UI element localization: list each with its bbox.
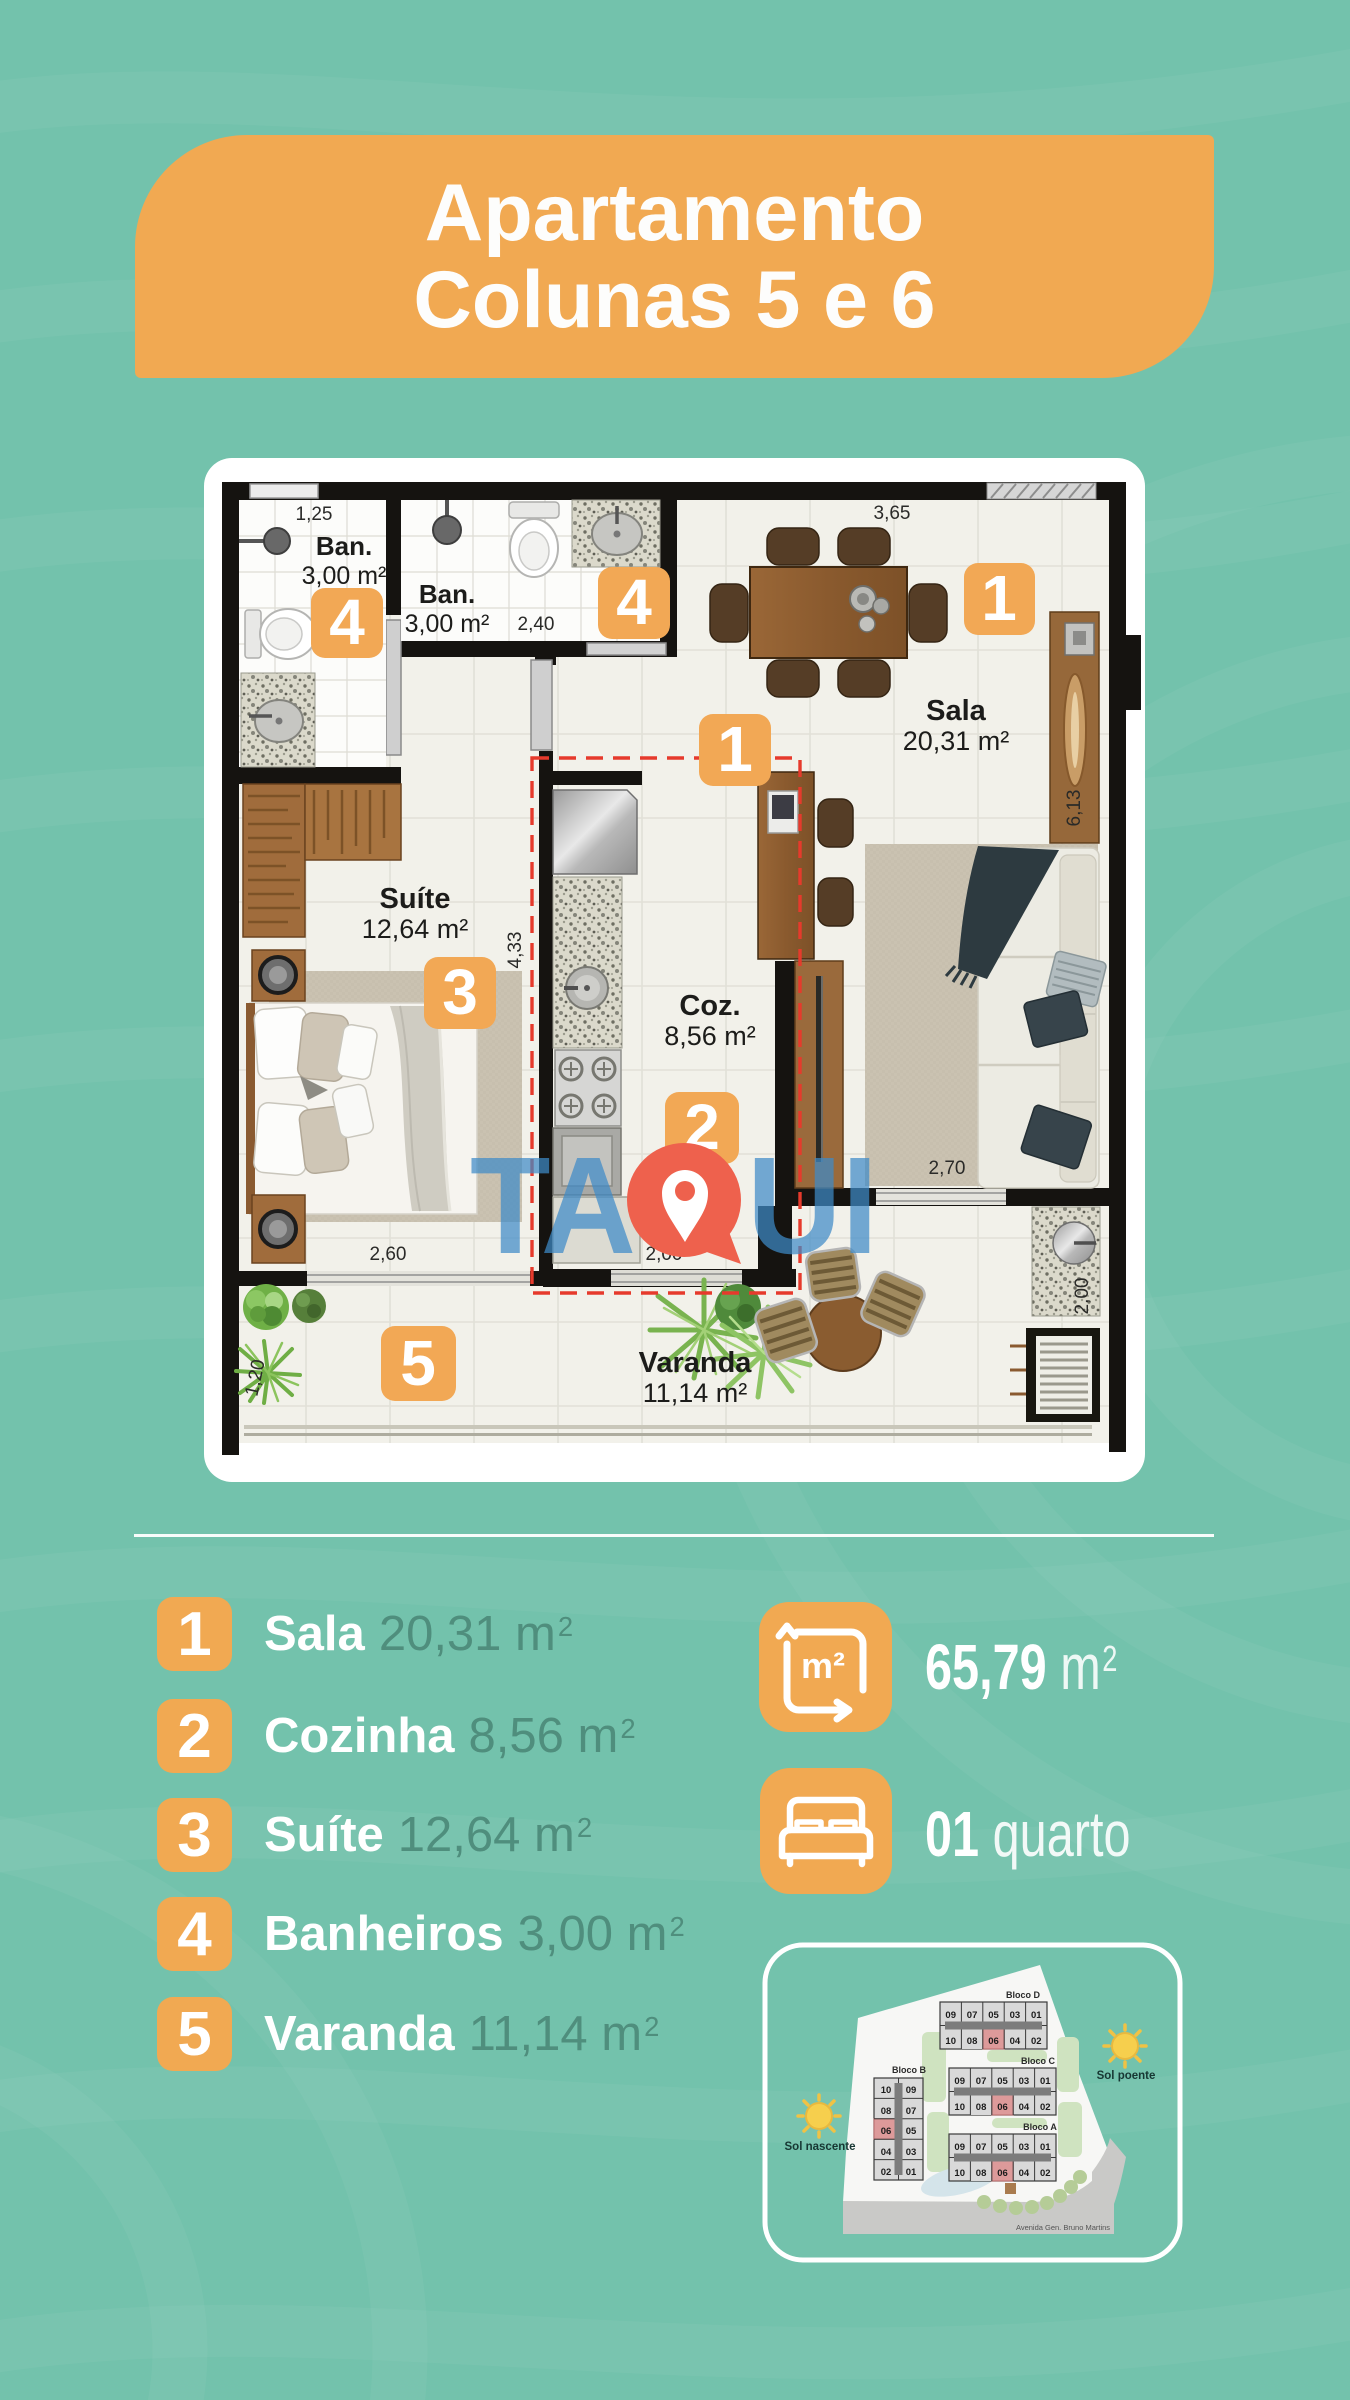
svg-text:Varanda: Varanda xyxy=(639,1347,753,1379)
svg-text:4,33: 4,33 xyxy=(505,932,526,969)
svg-text:Bloco B: Bloco B xyxy=(892,2065,927,2075)
svg-text:08: 08 xyxy=(881,2106,892,2117)
svg-text:05: 05 xyxy=(906,2126,917,2137)
svg-text:Sol poente: Sol poente xyxy=(1097,2070,1156,2082)
svg-text:4: 4 xyxy=(616,566,652,638)
svg-text:Coz.: Coz. xyxy=(679,990,740,1022)
svg-text:2,00: 2,00 xyxy=(1072,1278,1093,1315)
svg-text:3: 3 xyxy=(442,956,478,1028)
svg-text:10: 10 xyxy=(881,2085,892,2096)
svg-text:1: 1 xyxy=(981,562,1017,634)
svg-text:1: 1 xyxy=(717,713,753,785)
svg-text:03: 03 xyxy=(906,2147,917,2158)
svg-text:6,13: 6,13 xyxy=(1064,790,1085,827)
svg-text:Avenida Gen. Bruno Martins: Avenida Gen. Bruno Martins xyxy=(1016,2223,1110,2232)
svg-text:5: 5 xyxy=(400,1327,436,1399)
svg-text:2,70: 2,70 xyxy=(929,1158,966,1179)
svg-text:01: 01 xyxy=(906,2167,917,2178)
svg-text:06: 06 xyxy=(881,2126,892,2137)
svg-text:09: 09 xyxy=(906,2085,917,2096)
svg-text:Sala: Sala xyxy=(926,695,987,727)
svg-text:11,14 m²: 11,14 m² xyxy=(643,1378,748,1408)
svg-text:TA: TA xyxy=(470,1129,636,1283)
svg-text:Ban.: Ban. xyxy=(316,531,372,561)
svg-text:8,56 m²: 8,56 m² xyxy=(664,1021,756,1051)
svg-text:20,31 m²: 20,31 m² xyxy=(903,726,1010,756)
svg-text:m²: m² xyxy=(801,1645,845,1686)
svg-text:12,64 m²: 12,64 m² xyxy=(362,914,469,944)
svg-text:Bloco C: Bloco C xyxy=(1021,2056,1056,2066)
svg-text:Sol nascente: Sol nascente xyxy=(785,2141,856,2153)
svg-text:02: 02 xyxy=(881,2167,892,2178)
svg-text:UI: UI xyxy=(747,1129,878,1283)
svg-text:3,65: 3,65 xyxy=(874,503,911,524)
svg-text:Bloco D: Bloco D xyxy=(1006,1990,1041,2000)
svg-text:3,00 m²: 3,00 m² xyxy=(405,610,490,638)
svg-text:Ban.: Ban. xyxy=(419,579,475,609)
svg-text:Bloco A: Bloco A xyxy=(1023,2122,1057,2132)
svg-text:04: 04 xyxy=(881,2147,892,2158)
svg-text:07: 07 xyxy=(906,2106,917,2117)
svg-text:2,60: 2,60 xyxy=(370,1244,407,1265)
svg-text:4: 4 xyxy=(329,586,365,658)
svg-text:1,25: 1,25 xyxy=(296,504,333,525)
svg-text:Suíte: Suíte xyxy=(380,883,451,915)
svg-text:2,40: 2,40 xyxy=(518,614,555,635)
